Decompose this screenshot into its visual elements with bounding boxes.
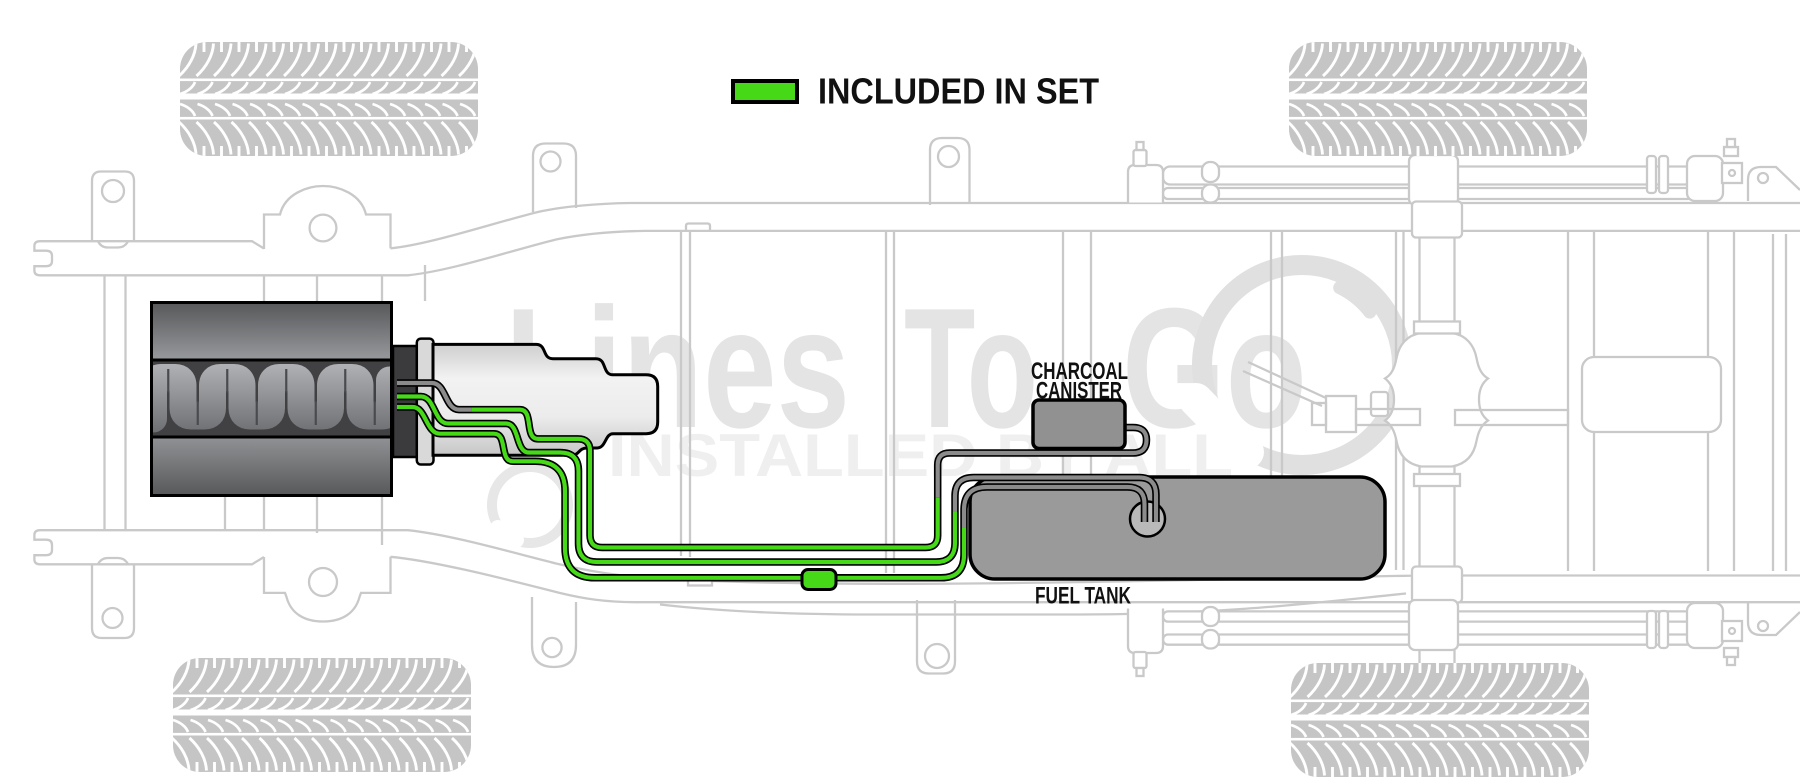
svg-text:CANISTER: CANISTER <box>1036 378 1122 405</box>
svg-text:INCLUDED IN SET: INCLUDED IN SET <box>818 71 1099 112</box>
svg-text:FUEL TANK: FUEL TANK <box>1035 583 1131 610</box>
